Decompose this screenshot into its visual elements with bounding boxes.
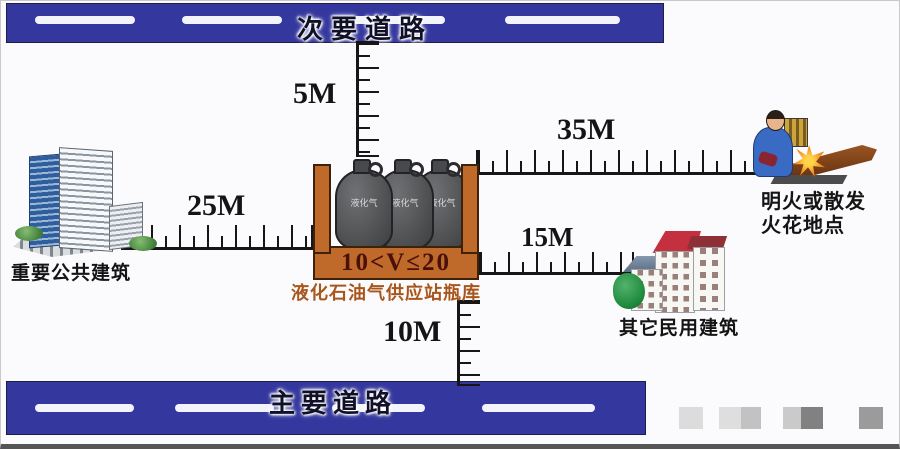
ruler-to-main-road [457,300,480,386]
diagram-canvas: 次要道路 主要道路 5M 25M 35M 15M 10M 重要公共建筑 液化气 … [0,0,900,449]
road-dash [35,404,134,412]
building-front-face [59,147,113,252]
container-right-wall [461,164,479,254]
road-dash [182,16,282,24]
watermark-block [859,407,883,429]
ruler-to-civil-building [478,252,634,275]
station-name-label: 液化石油气供应站瓶库 [291,279,481,305]
worker-figure [753,127,793,177]
road-dash [35,16,135,24]
ruler-to-secondary-road [356,41,379,157]
distance-label-10m: 10M [383,315,441,349]
fire-spot-label-line2: 火花地点 [761,209,845,238]
distance-label-15m: 15M [521,222,573,253]
civil-building-label: 其它民用建筑 [619,313,739,340]
gas-cylinder-label: 液化气 [337,196,391,209]
watermark-block [801,407,823,429]
road-dash [482,404,595,412]
distance-label-35m: 35M [557,113,615,147]
gas-cylinder-icon: 液化气 [335,169,393,251]
main-road-label: 主要道路 [269,383,397,420]
distance-label-25m: 25M [187,189,245,223]
lpg-station-illustration: 液化气 液化气 液化气 10<V≤20 [313,164,479,278]
container-left-wall [313,164,331,254]
ruler-to-fire-spot [476,150,760,175]
distance-label-5m: 5M [293,77,336,111]
main-road: 主要道路 [6,381,646,435]
watermark-block [679,407,703,429]
civil-building-illustration [613,223,725,315]
bush-icon [129,236,157,251]
fire-spot-illustration [743,109,879,191]
container-volume-label: 10<V≤20 [313,246,479,280]
watermark-block [783,407,801,429]
road-dash [175,404,274,412]
watermark-block [741,407,761,429]
building-wall [693,247,725,311]
tree-icon [613,273,645,309]
public-building-illustration [13,146,153,258]
worker-head [766,110,785,131]
road-dash [505,16,620,24]
public-building-label: 重要公共建筑 [11,258,131,285]
secondary-road: 次要道路 [6,3,664,43]
watermark-block [719,407,741,429]
bush-icon [15,226,43,241]
